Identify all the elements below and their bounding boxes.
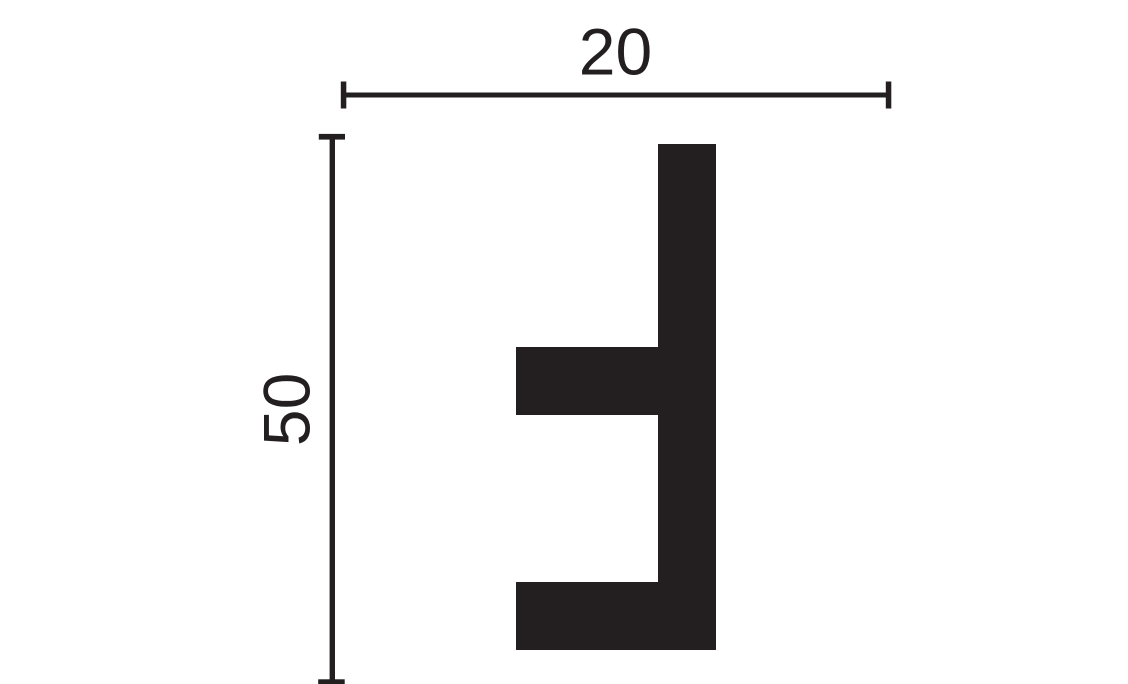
svg-text:20: 20 [579, 15, 652, 89]
svg-text:50: 50 [250, 373, 324, 446]
